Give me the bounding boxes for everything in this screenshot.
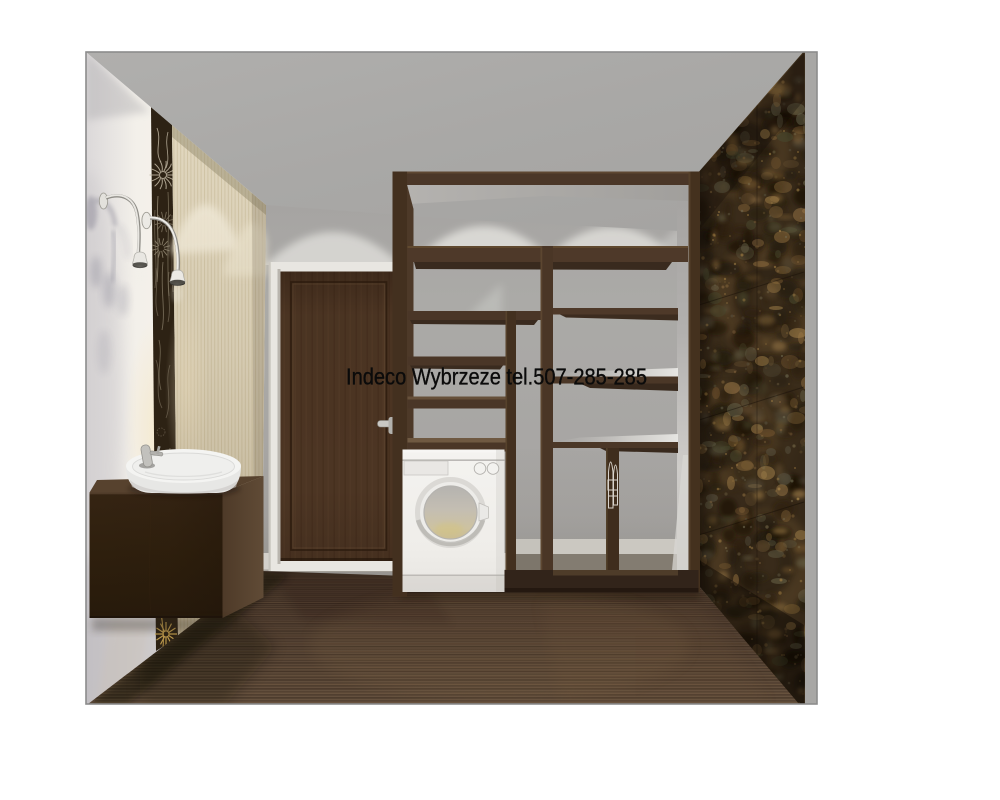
svg-text:Indeco Wybrzeze tel.507-285-28: Indeco Wybrzeze tel.507-285-285 <box>346 364 647 390</box>
